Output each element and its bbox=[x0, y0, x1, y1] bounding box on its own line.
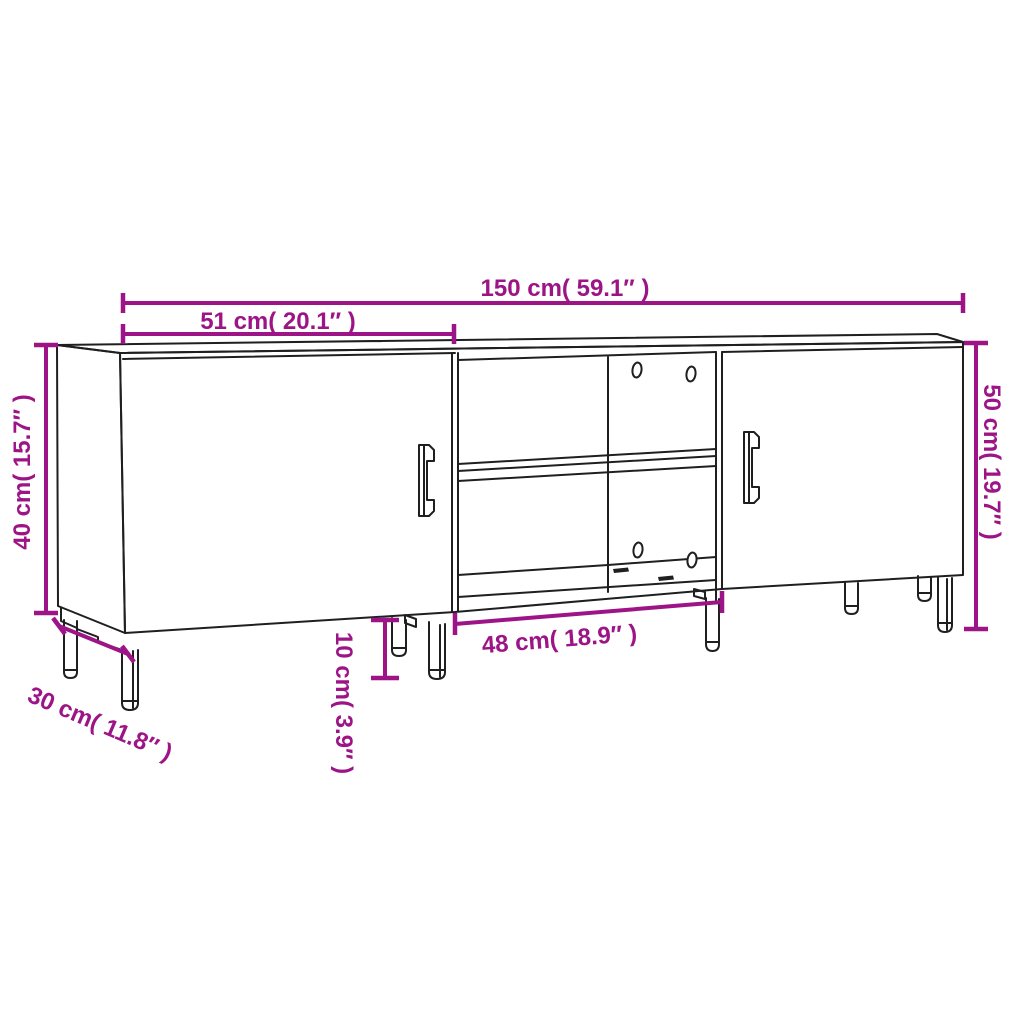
cable-holes bbox=[632, 362, 698, 568]
dim-leg-height: 10 cm( 3.9″ ) bbox=[330, 620, 399, 774]
middle-compartment bbox=[458, 352, 716, 597]
left-door-edge bbox=[452, 353, 458, 612]
dimension-diagram-canvas: 150 cm( 59.1″ ) 51 cm( 20.1″ ) 40 cm( 15… bbox=[0, 0, 1024, 1024]
dim-total-height: 50 cm( 19.7″ ) bbox=[964, 343, 1005, 629]
dim-left-section-width: 51 cm( 20.1″ ) bbox=[123, 308, 454, 344]
leg-rear-right bbox=[918, 576, 931, 601]
cabinet-front-face bbox=[120, 342, 963, 633]
cabinet-left-side-panel bbox=[57, 345, 125, 633]
dim-depth: 30 cm( 11.8″ ) bbox=[24, 618, 177, 767]
floor-vent-slots bbox=[613, 568, 674, 582]
dim-body-height-label: 40 cm( 15.7″ ) bbox=[9, 394, 36, 550]
dim-total-height-label: 50 cm( 19.7″ ) bbox=[978, 384, 1005, 540]
dim-middle-section-width-label: 48 cm( 18.9″ ) bbox=[481, 620, 638, 659]
dim-total-width-label: 150 cm( 59.1″ ) bbox=[481, 275, 650, 302]
tv-cabinet-dimension-diagram: 150 cm( 59.1″ ) 51 cm( 20.1″ ) 40 cm( 15… bbox=[0, 0, 1024, 1024]
leg-rear-mid-right bbox=[845, 582, 858, 614]
leg-front-mid-left bbox=[429, 622, 445, 679]
leg-rear-mid-left bbox=[392, 618, 406, 656]
dim-body-height: 40 cm( 15.7″ ) bbox=[9, 345, 58, 613]
dim-leg-height-label: 10 cm( 3.9″ ) bbox=[330, 632, 357, 774]
right-door-handle bbox=[744, 432, 759, 503]
compartment-floor-front-edge bbox=[458, 580, 716, 597]
left-door-handle bbox=[419, 445, 434, 516]
dim-left-section-width-label: 51 cm( 20.1″ ) bbox=[200, 308, 356, 335]
compartment-floor-back-edge bbox=[458, 557, 716, 575]
middle-shelf bbox=[458, 449, 716, 481]
leg-front-mid-right bbox=[706, 598, 719, 651]
leg-front-right bbox=[938, 577, 952, 632]
dim-depth-label: 30 cm( 11.8″ ) bbox=[24, 682, 177, 767]
compartment-top-edge bbox=[458, 352, 716, 360]
right-door-edge bbox=[716, 352, 722, 602]
